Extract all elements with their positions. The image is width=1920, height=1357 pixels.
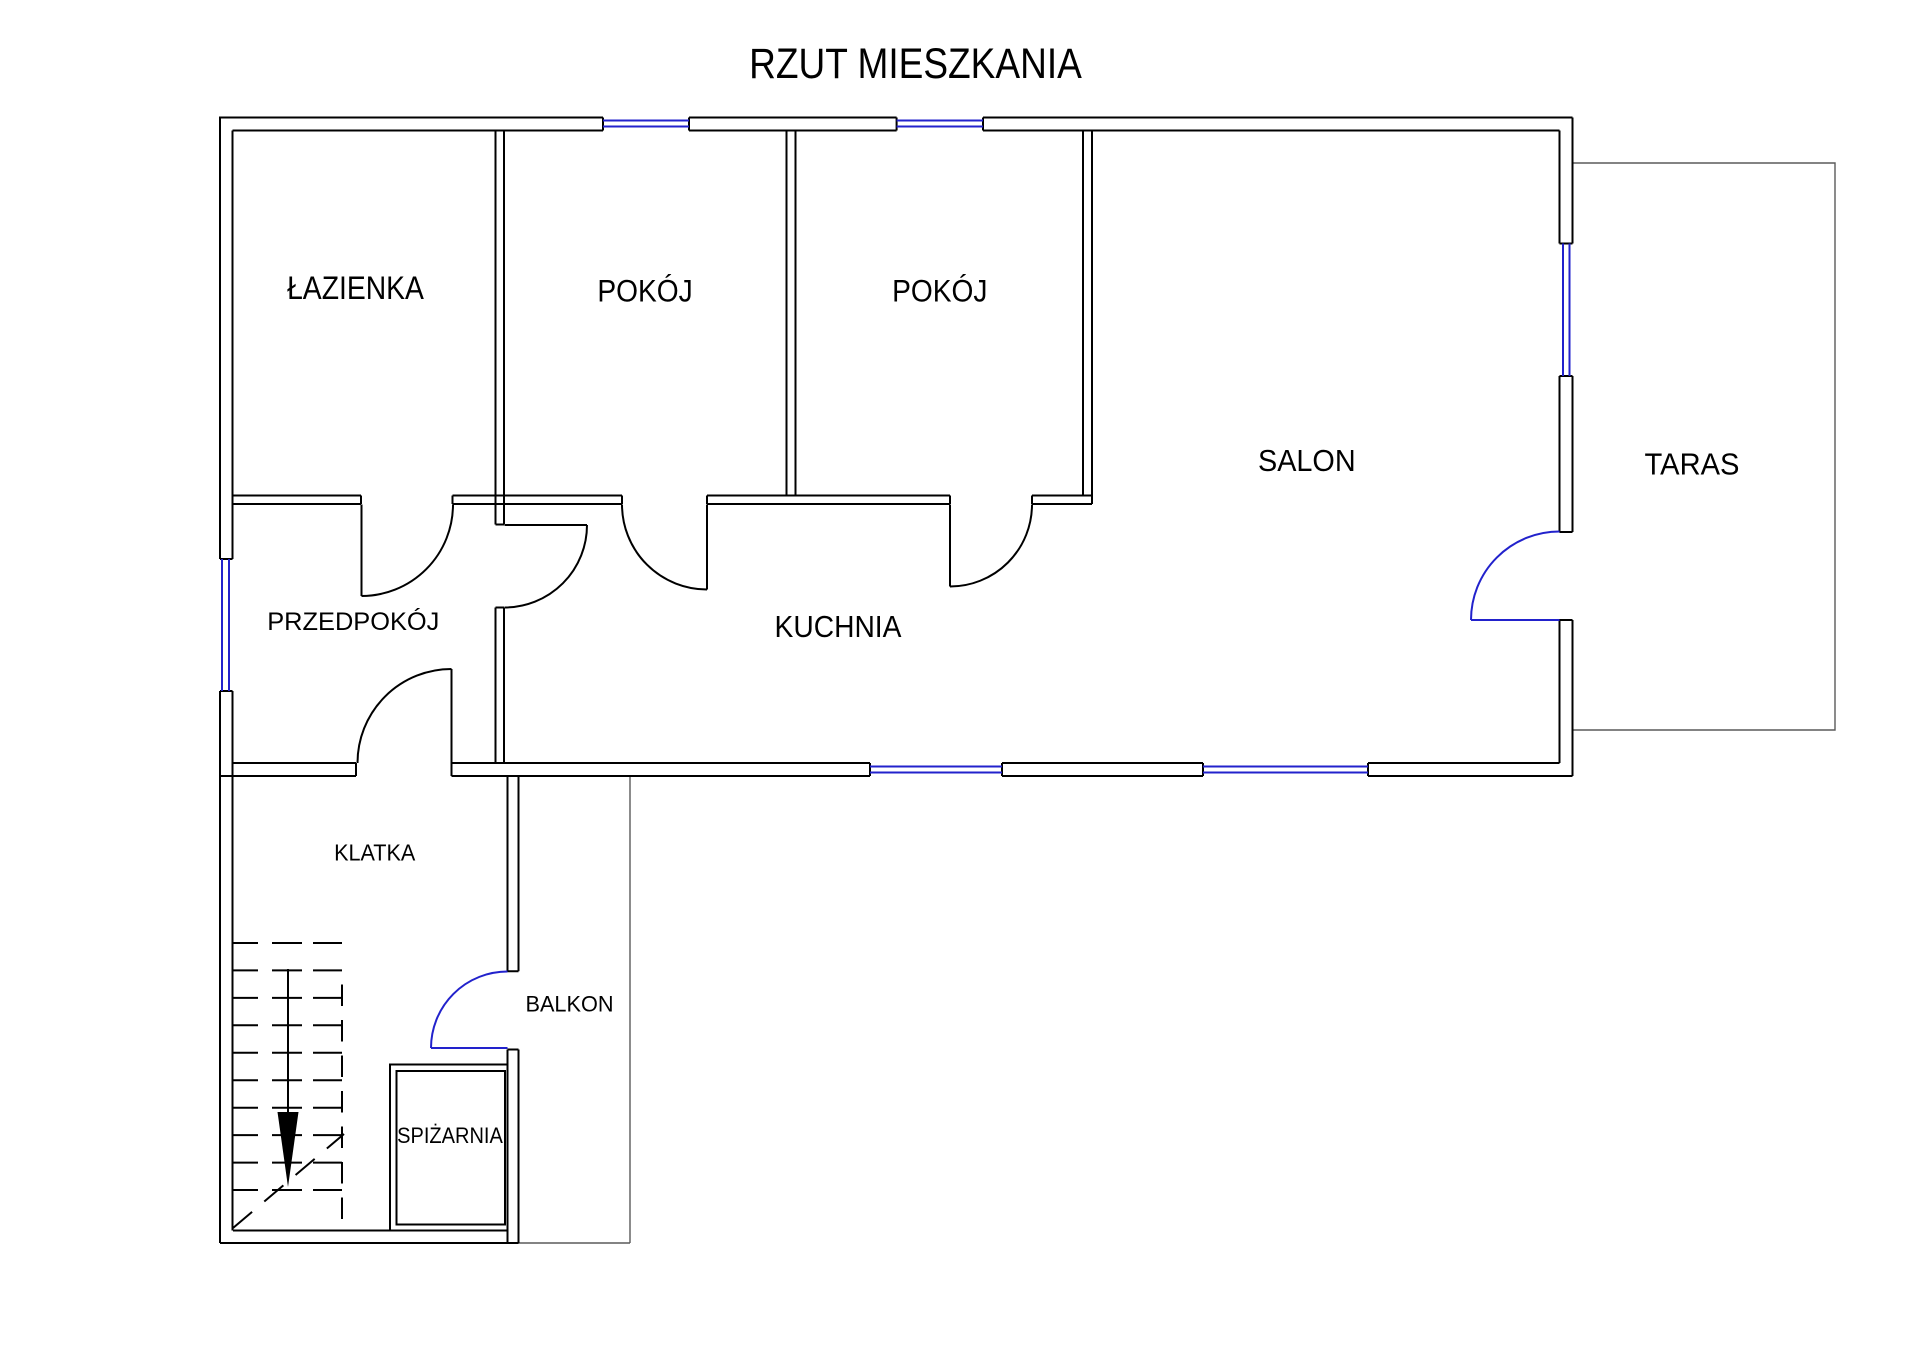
svg-text:PRZEDPOKÓJ: PRZEDPOKÓJ	[267, 607, 439, 636]
svg-text:ŁAZIENKA: ŁAZIENKA	[287, 270, 424, 306]
svg-text:KUCHNIA: KUCHNIA	[775, 610, 902, 644]
svg-text:TARAS: TARAS	[1645, 448, 1740, 482]
svg-text:BALKON: BALKON	[525, 991, 613, 1016]
svg-text:SALON: SALON	[1258, 444, 1356, 478]
svg-text:RZUT MIESZKANIA: RZUT MIESZKANIA	[749, 41, 1082, 88]
svg-text:POKÓJ: POKÓJ	[892, 274, 987, 309]
svg-text:KLATKA: KLATKA	[334, 840, 415, 866]
svg-text:POKÓJ: POKÓJ	[597, 274, 692, 309]
svg-text:SPIŻARNIA: SPIŻARNIA	[397, 1123, 503, 1148]
